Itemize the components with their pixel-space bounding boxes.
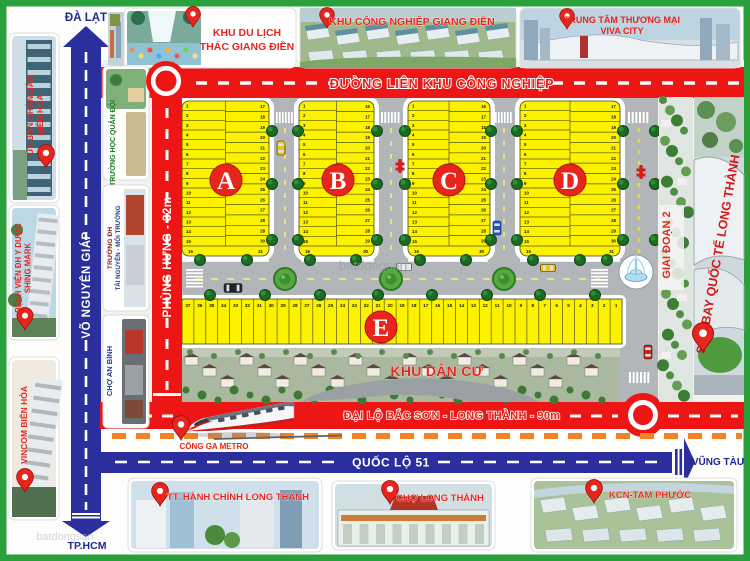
svg-text:21: 21	[611, 146, 616, 151]
svg-text:13: 13	[303, 220, 308, 225]
svg-text:KCN-TAM PHƯỚC: KCN-TAM PHƯỚC	[609, 489, 691, 501]
svg-text:BIÊN HÒA: BIÊN HÒA	[34, 94, 45, 136]
svg-text:32: 32	[245, 303, 251, 308]
svg-text:26: 26	[316, 303, 322, 308]
svg-text:18: 18	[611, 114, 616, 119]
svg-text:26: 26	[365, 208, 370, 213]
svg-text:28: 28	[481, 228, 486, 233]
svg-text:29: 29	[281, 303, 287, 308]
svg-text:21: 21	[376, 303, 382, 308]
svg-text:15: 15	[524, 239, 529, 244]
svg-text:28: 28	[365, 228, 370, 233]
svg-text:20: 20	[260, 135, 265, 140]
svg-text:24: 24	[481, 187, 486, 192]
svg-text:TRƯỜNG ĐH: TRƯỜNG ĐH	[105, 227, 114, 269]
svg-text:30: 30	[363, 249, 368, 254]
svg-text:33: 33	[233, 303, 239, 308]
svg-text:batdongsan: batdongsan	[36, 531, 94, 543]
svg-text:15: 15	[412, 239, 417, 244]
svg-text:21: 21	[481, 156, 486, 161]
svg-text:KHU CÔNG NGHIỆP GIANG ĐIỀN: KHU CÔNG NGHIỆP GIANG ĐIỀN	[329, 15, 495, 28]
svg-text:27: 27	[260, 208, 265, 213]
svg-text:28: 28	[611, 218, 616, 223]
svg-text:VINCOM BIÊN HÒA: VINCOM BIÊN HÒA	[18, 386, 29, 464]
svg-text:22: 22	[365, 166, 370, 171]
svg-text:36: 36	[197, 303, 203, 308]
svg-text:18: 18	[260, 114, 265, 119]
svg-text:27: 27	[481, 218, 486, 223]
svg-text:17: 17	[365, 114, 370, 119]
svg-text:29: 29	[365, 239, 370, 244]
svg-text:20: 20	[611, 135, 616, 140]
svg-text:14: 14	[412, 229, 417, 234]
svg-text:29: 29	[260, 228, 265, 233]
svg-text:23: 23	[481, 177, 486, 182]
svg-text:22: 22	[260, 156, 265, 161]
svg-text:25: 25	[365, 197, 370, 202]
svg-text:13: 13	[471, 303, 477, 308]
svg-text:VÕ NGUYÊN GIÁP: VÕ NGUYÊN GIÁP	[80, 231, 93, 338]
svg-text:21: 21	[365, 156, 370, 161]
svg-text:12: 12	[483, 303, 489, 308]
svg-text:CỔNG GA METRO: CỔNG GA METRO	[179, 442, 248, 451]
svg-text:19: 19	[260, 125, 265, 130]
svg-text:14: 14	[186, 229, 191, 234]
svg-text:15: 15	[447, 303, 453, 308]
svg-text:17: 17	[481, 114, 486, 119]
svg-text:6: 6	[555, 303, 558, 308]
svg-text:9: 9	[520, 303, 523, 308]
svg-text:VŨNG TÀU: VŨNG TÀU	[692, 455, 744, 468]
svg-text:TRƯỜNG HỌC QUÂN ĐỘI: TRƯỜNG HỌC QUÂN ĐỘI	[108, 100, 117, 186]
svg-text:30: 30	[479, 249, 484, 254]
svg-text:29: 29	[611, 228, 616, 233]
svg-text:18: 18	[365, 125, 370, 130]
svg-text:30: 30	[611, 239, 616, 244]
svg-text:16: 16	[526, 249, 531, 254]
svg-text:7: 7	[543, 303, 546, 308]
svg-text:19: 19	[611, 125, 616, 130]
svg-text:24: 24	[260, 177, 265, 182]
svg-text:26: 26	[611, 197, 616, 202]
svg-text:14: 14	[524, 229, 529, 234]
svg-text:TT. HÀNH CHÍNH LONG THÀNH: TT. HÀNH CHÍNH LONG THÀNH	[167, 492, 309, 503]
svg-text:25: 25	[260, 187, 265, 192]
svg-text:A: A	[217, 168, 235, 195]
svg-text:PHÙNG HƯNG - 32m: PHÙNG HƯNG - 32m	[161, 196, 174, 317]
svg-text:20: 20	[365, 146, 370, 151]
svg-text:ĐẠI LỘ BẮC SƠN - LONG THÀNH -: ĐẠI LỘ BẮC SƠN - LONG THÀNH - 90m	[344, 409, 561, 422]
svg-text:20: 20	[481, 146, 486, 151]
svg-text:CHỢ LONG THÀNH: CHỢ LONG THÀNH	[396, 493, 484, 504]
svg-text:19: 19	[399, 303, 405, 308]
svg-text:17: 17	[260, 104, 265, 109]
svg-text:31: 31	[609, 249, 614, 254]
svg-text:D: D	[561, 168, 579, 195]
svg-text:BỆNH VIỆN ĐH Y DƯỢC: BỆNH VIỆN ĐH Y DƯỢC	[14, 223, 23, 313]
svg-text:ĐƯỜNG LIÊN KHU CÔNG NGHIỆP: ĐƯỜNG LIÊN KHU CÔNG NGHIỆP	[330, 76, 554, 91]
svg-text:27: 27	[304, 303, 310, 308]
svg-text:23: 23	[365, 177, 370, 182]
svg-text:14: 14	[459, 303, 465, 308]
svg-text:28: 28	[260, 218, 265, 223]
svg-text:KHU DÂN CƯ: KHU DÂN CƯ	[390, 362, 483, 379]
svg-text:16: 16	[305, 249, 310, 254]
svg-text:16: 16	[414, 249, 419, 254]
svg-text:25: 25	[481, 197, 486, 202]
svg-text:13: 13	[186, 220, 191, 225]
svg-text:28: 28	[292, 303, 298, 308]
svg-text:10: 10	[506, 303, 512, 308]
svg-text:30: 30	[269, 303, 275, 308]
svg-text:19: 19	[365, 135, 370, 140]
svg-text:C: C	[440, 168, 458, 195]
svg-text:34: 34	[221, 303, 227, 308]
svg-text:E: E	[373, 315, 390, 342]
svg-text:13: 13	[412, 220, 417, 225]
svg-text:QUỐC LỘ 51: QUỐC LỘ 51	[352, 455, 430, 470]
svg-text:17: 17	[423, 303, 429, 308]
svg-text:25: 25	[611, 187, 616, 192]
svg-text:24: 24	[365, 187, 370, 192]
svg-text:16: 16	[188, 249, 193, 254]
svg-text:31: 31	[257, 303, 263, 308]
svg-text:batdongsan: batdongsan	[339, 258, 407, 273]
svg-text:13: 13	[524, 220, 529, 225]
svg-text:GIAI ĐOẠN 2: GIAI ĐOẠN 2	[661, 211, 673, 278]
svg-text:11: 11	[186, 200, 191, 205]
svg-text:12: 12	[524, 210, 529, 215]
svg-text:TRUNG TÂM THƯƠNG MẠI: TRUNG TÂM THƯƠNG MẠI	[564, 14, 680, 25]
svg-text:ĐÀ LẠT: ĐÀ LẠT	[65, 11, 107, 24]
svg-text:20: 20	[388, 303, 394, 308]
svg-text:27: 27	[611, 208, 616, 213]
svg-text:1: 1	[615, 303, 618, 308]
svg-text:22: 22	[481, 166, 486, 171]
svg-text:16: 16	[365, 104, 370, 109]
svg-text:19: 19	[481, 135, 486, 140]
svg-text:37: 37	[185, 303, 191, 308]
svg-text:11: 11	[524, 200, 529, 205]
svg-text:17: 17	[611, 104, 616, 109]
svg-text:8: 8	[532, 303, 535, 308]
svg-text:15: 15	[186, 239, 191, 244]
svg-text:10: 10	[524, 191, 529, 196]
svg-text:10: 10	[303, 191, 308, 196]
svg-text:14: 14	[303, 229, 308, 234]
svg-text:10: 10	[186, 191, 191, 196]
svg-text:TÀI NGUYÊN - MÔI TRƯỜNG: TÀI NGUYÊN - MÔI TRƯỜNG	[114, 205, 122, 290]
svg-text:11: 11	[412, 200, 417, 205]
svg-text:SHING MARK: SHING MARK	[24, 243, 33, 294]
svg-text:31: 31	[258, 249, 263, 254]
svg-text:ỦY BAN NHÂN DÂN: ỦY BAN NHÂN DÂN	[24, 75, 35, 155]
svg-text:23: 23	[260, 166, 265, 171]
svg-text:12: 12	[186, 210, 191, 215]
svg-text:27: 27	[365, 218, 370, 223]
svg-text:26: 26	[260, 197, 265, 202]
svg-text:2: 2	[603, 303, 606, 308]
svg-text:3: 3	[591, 303, 594, 308]
svg-text:16: 16	[481, 104, 486, 109]
svg-text:THÁC GIANG ĐIỀN: THÁC GIANG ĐIỀN	[200, 40, 295, 53]
svg-text:21: 21	[260, 146, 265, 151]
svg-text:26: 26	[481, 208, 486, 213]
svg-text:VIVA CITY: VIVA CITY	[600, 26, 643, 36]
svg-text:KHU DU LỊCH: KHU DU LỊCH	[213, 27, 281, 39]
svg-text:24: 24	[340, 303, 346, 308]
svg-text:11: 11	[303, 200, 308, 205]
svg-text:18: 18	[411, 303, 417, 308]
svg-text:22: 22	[611, 156, 616, 161]
svg-text:23: 23	[611, 166, 616, 171]
svg-text:16: 16	[435, 303, 441, 308]
svg-text:CHỢ AN BÌNH: CHỢ AN BÌNH	[105, 346, 114, 396]
svg-text:24: 24	[611, 177, 616, 182]
svg-text:5: 5	[567, 303, 570, 308]
svg-text:B: B	[330, 168, 347, 195]
svg-text:10: 10	[412, 191, 417, 196]
svg-text:30: 30	[260, 239, 265, 244]
svg-text:22: 22	[364, 303, 370, 308]
svg-text:12: 12	[412, 210, 417, 215]
svg-text:4: 4	[579, 303, 582, 308]
svg-text:35: 35	[209, 303, 215, 308]
svg-text:23: 23	[352, 303, 358, 308]
svg-text:25: 25	[328, 303, 334, 308]
svg-text:12: 12	[303, 210, 308, 215]
svg-text:11: 11	[495, 303, 500, 308]
